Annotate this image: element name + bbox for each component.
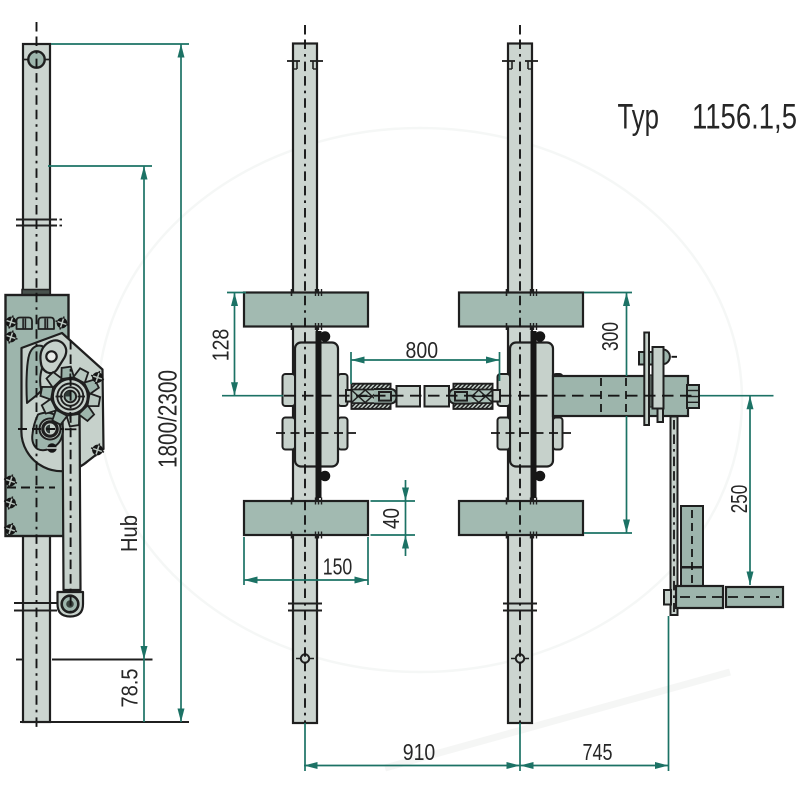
svg-text:1800/2300: 1800/2300 xyxy=(153,370,183,468)
svg-text:300: 300 xyxy=(597,322,623,351)
svg-text:128: 128 xyxy=(208,329,234,362)
svg-text:800: 800 xyxy=(406,337,439,363)
svg-text:Typ: Typ xyxy=(618,98,660,137)
svg-text:40: 40 xyxy=(378,508,404,529)
svg-text:1156.1,5: 1156.1,5 xyxy=(692,98,797,137)
svg-text:150: 150 xyxy=(323,554,353,580)
svg-text:910: 910 xyxy=(403,739,436,765)
svg-text:78.5: 78.5 xyxy=(117,669,143,708)
svg-text:745: 745 xyxy=(583,739,613,765)
svg-text:250: 250 xyxy=(726,485,752,514)
svg-text:Hub: Hub xyxy=(116,515,142,552)
